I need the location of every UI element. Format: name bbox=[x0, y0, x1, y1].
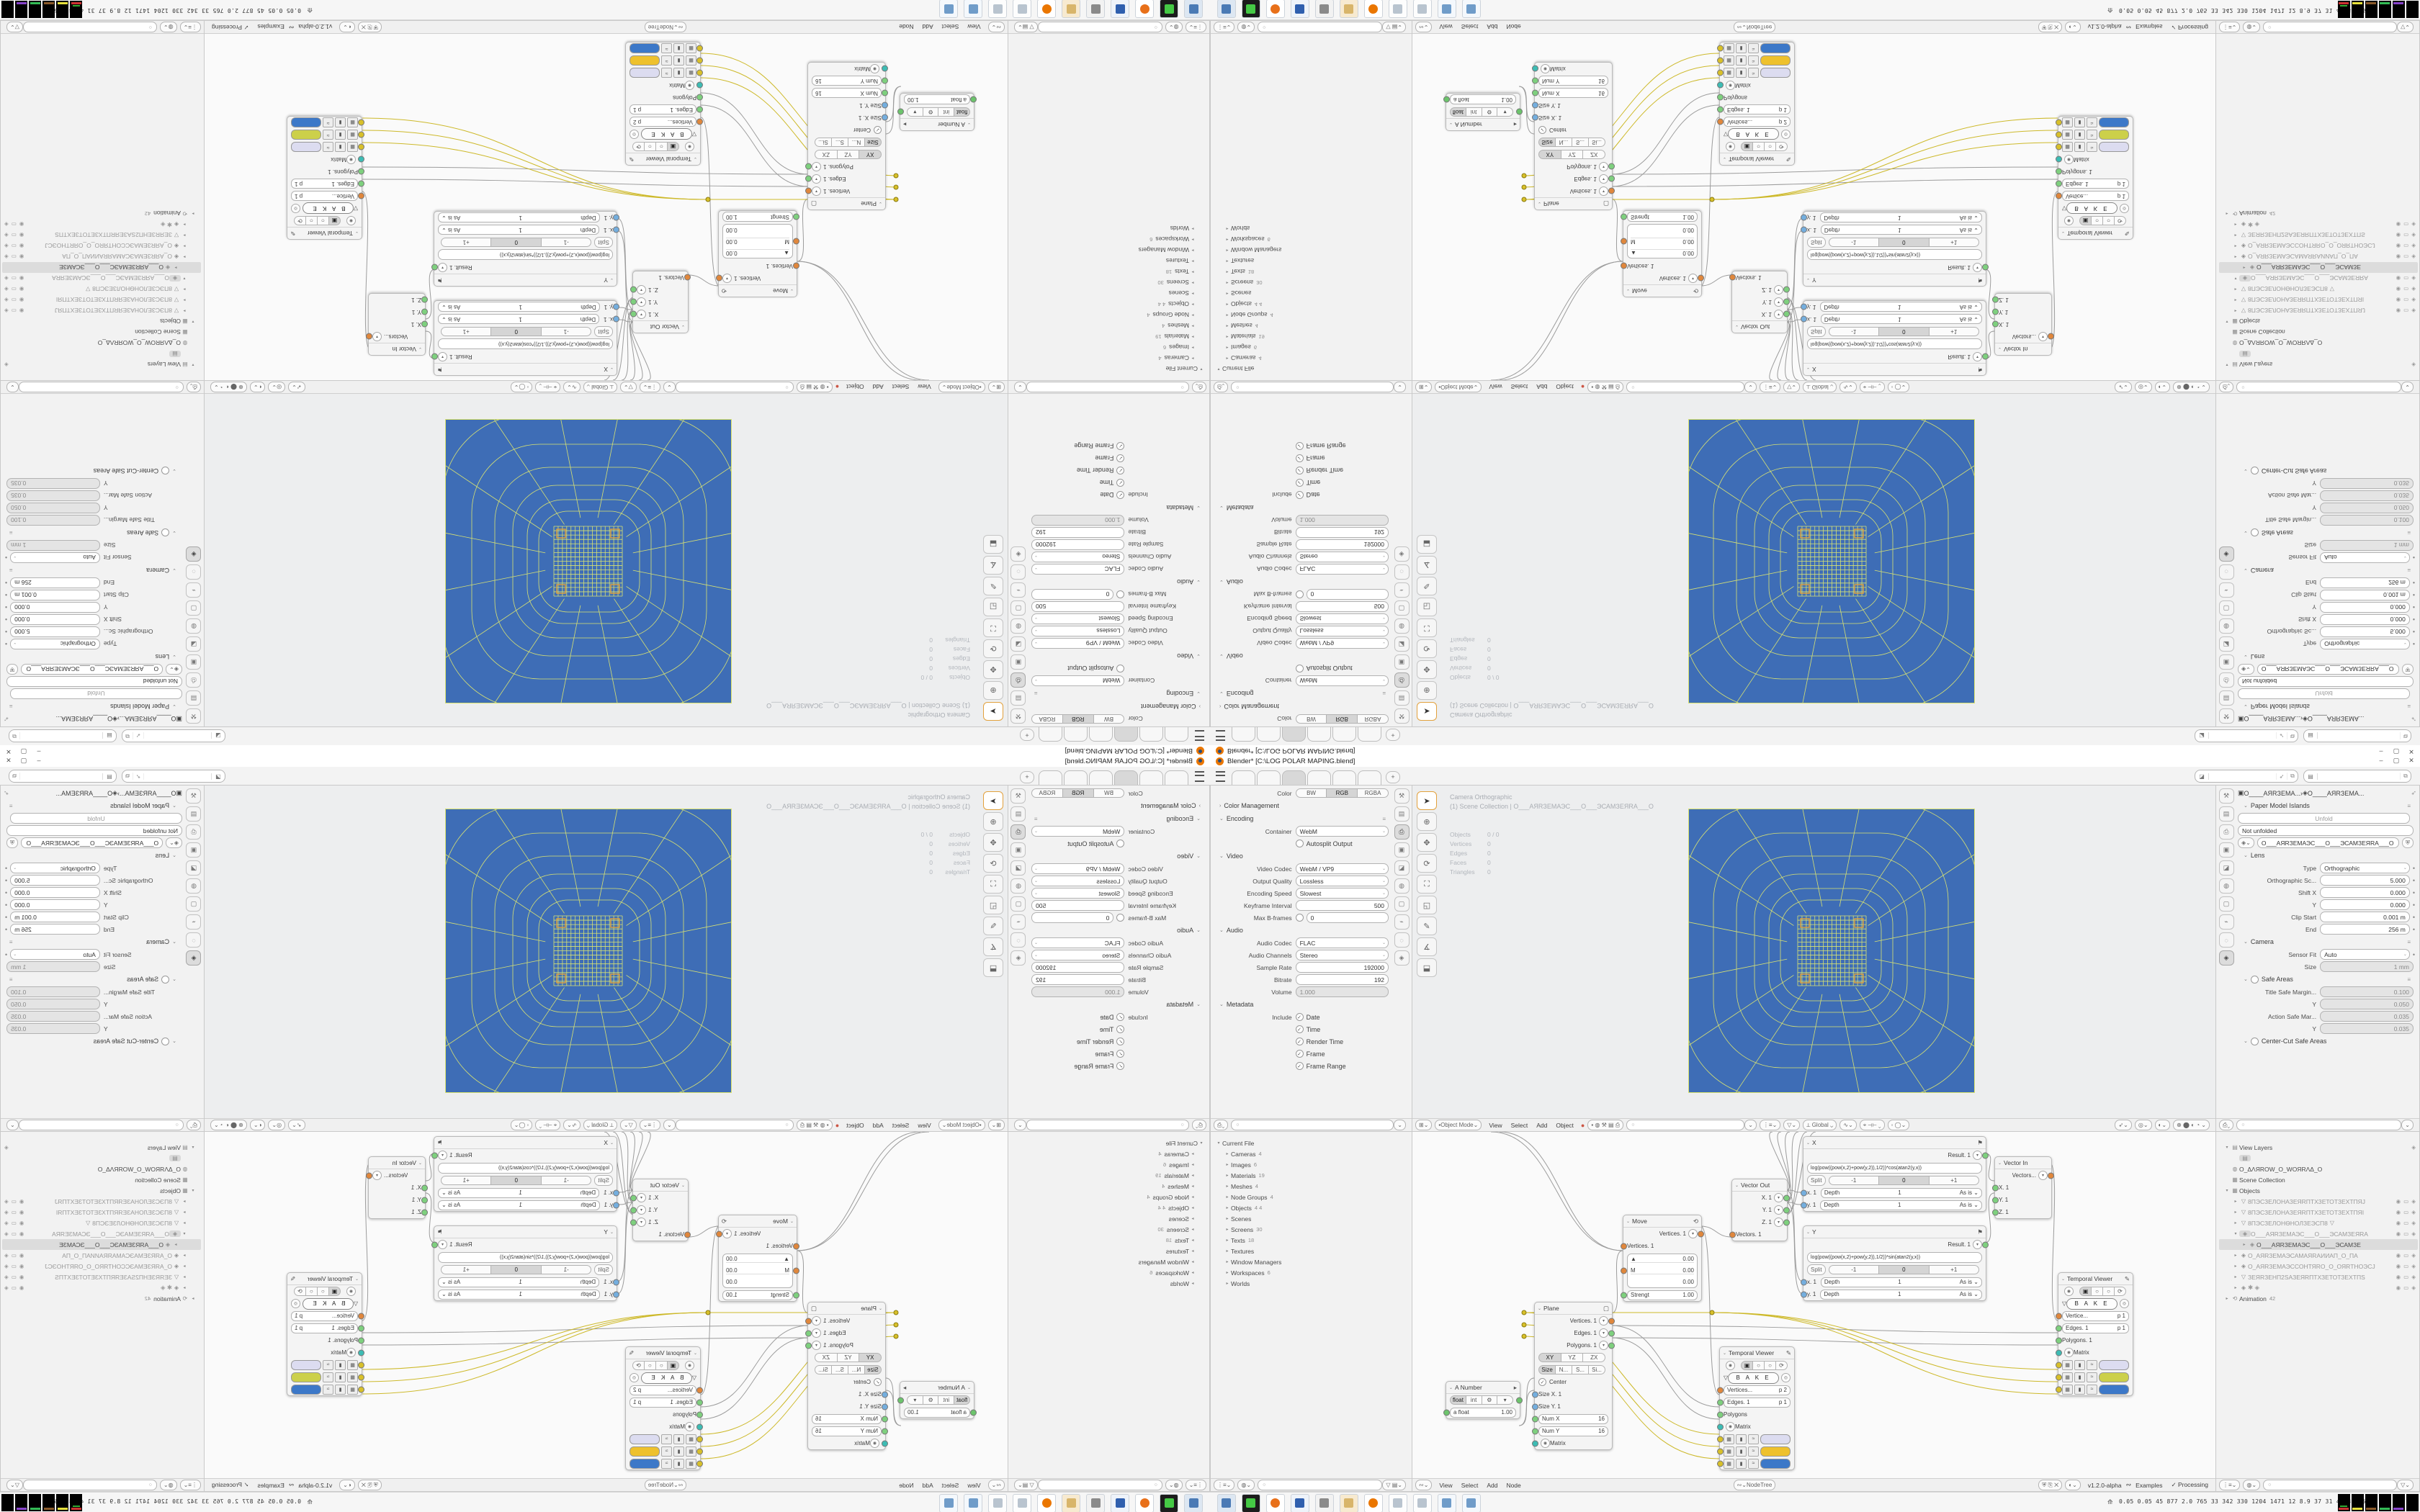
prop-field[interactable]: Stereo⌄ bbox=[1031, 950, 1124, 960]
swatch-option-icon[interactable]: ▮ bbox=[1736, 1459, 1747, 1469]
socket-l[interactable] bbox=[970, 96, 977, 103]
overlay-toggle-group[interactable]: ▪ ◍ ⚒ ▤ ⎙ bbox=[797, 1120, 833, 1130]
prop-field[interactable]: 1.000 bbox=[1031, 515, 1124, 526]
overlays-toggle[interactable]: ◎⌄ bbox=[2135, 1120, 2152, 1130]
taskbar-app-firefox[interactable] bbox=[1135, 0, 1154, 18]
monitor-icon[interactable]: ▭ bbox=[2403, 307, 2408, 314]
socket-l[interactable] bbox=[1532, 1391, 1538, 1398]
prop-field[interactable]: 1.000 bbox=[1296, 986, 1389, 997]
value-pill[interactable]: a float1.00 bbox=[1450, 95, 1516, 105]
outliner-row[interactable]: ▸◈ O_АЯRЗЕМАЭСАМАЯRАИИАП_О_ПА◉▭◈ bbox=[2, 1250, 201, 1261]
socket-r[interactable] bbox=[1608, 188, 1615, 194]
value-dropdown[interactable]: ▾ bbox=[1774, 1218, 1783, 1227]
value-pill[interactable]: Num X16 bbox=[812, 1414, 882, 1424]
panel-header-encoding[interactable]: ⌄Encoding≡ bbox=[1028, 687, 1206, 700]
menu-add[interactable]: Add bbox=[873, 1122, 884, 1129]
outliner-row[interactable]: ▸◈ ✱ ◈◉▭◈ bbox=[2219, 1282, 2418, 1293]
node-header[interactable]: ⌄Temporal Viewer✎ bbox=[287, 227, 362, 239]
viewlayer-selector[interactable]: ▤ ⧉ bbox=[2303, 770, 2411, 783]
checkbox[interactable] bbox=[1116, 840, 1124, 847]
prop-field[interactable]: WebM⌄ bbox=[1031, 826, 1124, 837]
segment-[interactable]: ▾ bbox=[907, 1395, 923, 1405]
node-tree-selector[interactable]: ∾⌄ NodeTree bbox=[1734, 22, 1776, 32]
socket-r[interactable] bbox=[1783, 299, 1790, 305]
socket-r[interactable] bbox=[1608, 176, 1615, 182]
node-a-number[interactable]: ⌄A Number▸floatint⚙▾a float1.00 bbox=[1446, 93, 1520, 131]
tool-button-6[interactable]: ✎ bbox=[1417, 917, 1437, 935]
node-checkbox[interactable]: ✓ bbox=[1538, 126, 1546, 134]
split-button[interactable]: Split bbox=[594, 1175, 613, 1186]
id-name-field[interactable]: O___АЯRЗЕМАЭС___О___ЭСАМЗЕЯRА___О bbox=[2257, 664, 2399, 675]
tool-button-7[interactable]: ∡ bbox=[983, 937, 1003, 956]
workspace-tab-6[interactable] bbox=[1039, 770, 1062, 785]
eye-icon[interactable]: ◉ bbox=[2396, 286, 2401, 292]
node-header[interactable]: ⌄Vector In bbox=[369, 343, 425, 355]
value-dropdown[interactable]: ▾ bbox=[637, 1193, 646, 1202]
swatch-option-icon[interactable]: ▦ bbox=[2062, 130, 2073, 140]
swatch-option-icon[interactable]: ▮ bbox=[1736, 68, 1747, 78]
node-header[interactable]: ⌄Vector In bbox=[1995, 343, 2051, 355]
eye-icon[interactable]: ◉ bbox=[19, 1230, 24, 1237]
menu-view[interactable]: View bbox=[967, 1482, 980, 1489]
minimize-button[interactable]: – bbox=[35, 747, 43, 755]
eye-icon[interactable]: ◉ bbox=[346, 216, 356, 225]
tool-button-0[interactable]: ➤ bbox=[983, 702, 1003, 721]
depth-pill[interactable]: Depth1As is ⌄ bbox=[1821, 315, 1982, 325]
outliner-row[interactable]: ▸▽ 8ПЭСЗЕЛОНѲНОЛЗЕЭСП8 ▽◉▭◈ bbox=[2, 1218, 201, 1228]
properties-tab-4[interactable]: ◪ bbox=[1394, 860, 1410, 876]
node-editor[interactable]: ⌄A Number▸floatint⚙▾a float1.00⌄Plane▢Ve… bbox=[1412, 20, 2216, 381]
panel-menu-icon[interactable]: ≡ bbox=[2407, 976, 2411, 983]
properties-tab-3[interactable]: ▣ bbox=[2219, 654, 2234, 670]
swatch-option-icon[interactable]: ▦ bbox=[686, 1446, 696, 1457]
socket-l[interactable] bbox=[1717, 58, 1724, 64]
panel-checkbox[interactable] bbox=[2251, 976, 2259, 984]
outliner-row[interactable]: ▸◈ O_АЯRЗЕМАЭССОНТЯRО_О_ОЯRТНОЭСЈ◉▭◈ bbox=[2, 240, 201, 251]
socket-l[interactable] bbox=[1621, 238, 1627, 245]
vector-widget[interactable]: ▲0.00M0.000.00 bbox=[722, 225, 793, 259]
display-mode-dropdown[interactable]: ⋮≡⌄ bbox=[1214, 22, 1234, 32]
node-a-number[interactable]: ⌄A Number▸floatint⚙▾a float1.00 bbox=[900, 1381, 974, 1419]
outliner-file-item[interactable]: ▸Textures bbox=[1215, 1246, 1409, 1256]
taskbar-app-folder[interactable] bbox=[1062, 1494, 1080, 1512]
socket-r[interactable] bbox=[716, 275, 722, 282]
segment-[interactable]: ⚙ bbox=[1482, 1395, 1498, 1405]
split-1[interactable]: +1 bbox=[441, 238, 491, 247]
socket-r[interactable] bbox=[630, 287, 637, 293]
monitor-icon[interactable]: ▭ bbox=[12, 1263, 17, 1269]
node-temporal-viewer[interactable]: ⌄Temporal Viewer✎◉▣○○⟳▽B A K E◎Vertice..… bbox=[287, 116, 362, 240]
socket-l[interactable] bbox=[1801, 1189, 1807, 1196]
depth-pill[interactable]: Depth1As is ⌄ bbox=[438, 225, 599, 235]
new-id-icon[interactable]: ⧉ bbox=[2400, 773, 2411, 780]
shape-1[interactable]: ○ bbox=[2091, 1287, 2103, 1296]
swatch-option-icon[interactable]: ▮ bbox=[673, 68, 684, 78]
outliner-file-item[interactable]: ▸Workspaces6 bbox=[1215, 1267, 1409, 1278]
menu-select[interactable]: Select bbox=[942, 1482, 959, 1489]
snap-target-group[interactable]: ⌖ ⊣⊢ ⌄ bbox=[535, 1120, 560, 1130]
workspace-tab-3[interactable] bbox=[1282, 727, 1306, 742]
editor-type-button[interactable]: ⎙⌄ bbox=[1214, 382, 1228, 392]
socket-l[interactable] bbox=[1443, 96, 1450, 103]
shape-2[interactable]: ○ bbox=[305, 216, 318, 225]
socket-r[interactable] bbox=[1608, 1342, 1615, 1349]
value-pill[interactable]: Num X16 bbox=[1538, 89, 1608, 99]
outliner-file-item[interactable]: ▸Window Managers bbox=[1011, 1256, 1205, 1267]
properties-tab-6[interactable]: ▢ bbox=[187, 896, 202, 912]
gizmo-toggle[interactable]: ➶⌄ bbox=[2115, 1120, 2131, 1130]
anim-dot-icon[interactable]: • bbox=[5, 865, 7, 872]
depth-pill[interactable]: Depth1As is ⌄ bbox=[1821, 225, 1982, 235]
segment-[interactable]: ⚙ bbox=[923, 1395, 939, 1405]
value-dropdown[interactable]: ▾ bbox=[637, 285, 646, 294]
menu-select[interactable]: Select bbox=[1461, 24, 1479, 31]
value-pill[interactable]: Num Y16 bbox=[1538, 76, 1608, 86]
socket-l[interactable] bbox=[358, 120, 364, 126]
prop-field[interactable]: 0.050 bbox=[6, 999, 100, 1009]
prop-field[interactable]: WebM / VP9⌄ bbox=[1296, 863, 1389, 874]
node-vector-out[interactable]: ⌄Vector OutX. 1▾Y. 1▾Z. 1▾Vectors. 1 bbox=[1731, 1179, 1788, 1241]
properties-tab-1[interactable]: ▤ bbox=[1394, 806, 1410, 822]
value-dropdown[interactable]: ▾ bbox=[1774, 1193, 1783, 1202]
color-swatch[interactable] bbox=[1760, 56, 1791, 66]
outliner-file-item[interactable]: ▸Cameras4 bbox=[1011, 1148, 1205, 1159]
value-pill[interactable]: Vertices...p 2 bbox=[629, 117, 696, 127]
snap-target-group[interactable]: ⌖ ⊣⊢ ⌄ bbox=[535, 382, 560, 392]
taskbar-app-folder[interactable] bbox=[1062, 0, 1080, 18]
panel-menu-icon[interactable]: ≡ bbox=[1382, 816, 1386, 822]
bake-button[interactable]: B A K E bbox=[2066, 1298, 2117, 1310]
swatch-option-icon[interactable]: ▦ bbox=[686, 44, 696, 54]
prop-field[interactable]: 0.050 bbox=[2320, 503, 2414, 513]
outliner-row[interactable]: ▾▤ View Layers◈ bbox=[2219, 1142, 2418, 1153]
shape-3[interactable]: ⟳ bbox=[2114, 216, 2126, 225]
prop-field[interactable]: WebM / VP9⌄ bbox=[1031, 638, 1124, 649]
color-option-rgb[interactable]: RGB bbox=[1326, 788, 1358, 798]
render-icon[interactable]: ◈ bbox=[2411, 1230, 2416, 1237]
close-button[interactable]: ✕ bbox=[2407, 747, 2416, 755]
record-icon[interactable]: ◎ bbox=[1781, 130, 1791, 139]
scene-selector[interactable]: ◪ ➶ ⧉ bbox=[2195, 729, 2298, 742]
outliner-file-item[interactable]: ▸Textures bbox=[1011, 256, 1205, 266]
socket-r[interactable] bbox=[805, 163, 812, 170]
prop-field[interactable]: FLAC⌄ bbox=[1031, 937, 1124, 948]
segment-XY[interactable]: XY bbox=[859, 1353, 882, 1362]
socket-l[interactable] bbox=[882, 78, 888, 84]
taskbar-app-firefox[interactable] bbox=[1266, 0, 1285, 18]
render-icon[interactable]: ◈ bbox=[4, 232, 9, 238]
eye-icon[interactable]: ◉ bbox=[2396, 275, 2401, 282]
monitor-icon[interactable]: ▭ bbox=[12, 243, 17, 249]
filter-id-dropdown[interactable]: ◍⌄ bbox=[1237, 22, 1255, 32]
unfold-button[interactable]: Unfold bbox=[2238, 688, 2410, 699]
prop-field[interactable]: 192 bbox=[1031, 527, 1124, 538]
taskbar-app-notepad[interactable] bbox=[1413, 0, 1432, 18]
outliner-file-item[interactable]: ▸Screens30 bbox=[1215, 277, 1409, 288]
outliner-row[interactable]: ▸▽ ЗЕЯRЗЕНП2SАЗЕЯRПТХЗЕТОТЗЕХТПS◉▭◈ bbox=[2219, 1272, 2418, 1282]
properties-tab-3[interactable]: ▣ bbox=[1011, 654, 1026, 670]
viewport-3d[interactable]: ➤⊕✥⟳⛶◱✎∡⬓Camera Orthographic(1) Scene Co… bbox=[204, 785, 1008, 1132]
xray-toggle[interactable]: ◐⌄ bbox=[2155, 382, 2171, 392]
outliner-row[interactable]: ▦ Scene Collection bbox=[2, 1174, 201, 1185]
monitor-icon[interactable]: ▭ bbox=[12, 232, 17, 238]
window-titlebar[interactable]: Blender* [C:\LOG POLAR MAPING.blend] – ▢… bbox=[1210, 744, 2420, 756]
properties-tab-4[interactable]: ◪ bbox=[187, 636, 202, 652]
bake-button[interactable]: B A K E bbox=[1728, 129, 1779, 140]
color-swatch[interactable] bbox=[2099, 1360, 2129, 1370]
examples-menu[interactable]: Examples bbox=[2136, 24, 2162, 31]
anim-dot-icon[interactable]: • bbox=[5, 604, 7, 611]
properties-tab-9[interactable]: ◈ bbox=[1011, 950, 1026, 966]
depth-pill[interactable]: Depth1As is ⌄ bbox=[438, 315, 599, 325]
node-header[interactable]: ⌄Vector Out bbox=[633, 1179, 688, 1192]
panel-header-lens[interactable]: ⌄Lens bbox=[4, 849, 182, 862]
value-dropdown[interactable]: ▾ bbox=[1774, 285, 1783, 294]
outliner-row[interactable]: ▾▤ View Layers◈ bbox=[2, 359, 201, 370]
panel-menu-icon[interactable]: ≡ bbox=[9, 567, 13, 574]
eye-icon[interactable]: ◉ bbox=[19, 1263, 24, 1269]
camera-id-icon[interactable]: ◈⌄ bbox=[166, 837, 182, 848]
properties-tab-9[interactable]: ◈ bbox=[187, 546, 202, 562]
panel-header-metadata[interactable]: ⌄Metadata bbox=[1214, 501, 1391, 514]
eye-icon[interactable]: ◉ bbox=[19, 1252, 24, 1259]
workspace-tab-2[interactable] bbox=[1139, 727, 1163, 742]
value-dropdown[interactable]: ▾ bbox=[812, 162, 821, 171]
workspace-tab-5[interactable] bbox=[1064, 770, 1088, 785]
monitor-icon[interactable]: ▭ bbox=[12, 1284, 17, 1291]
node-header[interactable]: ⌄Y⚑ bbox=[434, 1226, 617, 1238]
viewport-search-input[interactable] bbox=[676, 1120, 794, 1130]
socket-l[interactable] bbox=[2056, 1386, 2062, 1392]
outliner-row[interactable]: ▾◈ O___АЯRЗЕМАЭС___О___ЭСАМЗЕЯRА◉▭◈ bbox=[2219, 1228, 2418, 1239]
shape-1[interactable]: ○ bbox=[1752, 142, 1765, 151]
panel-header-camera[interactable]: ⌄Camera≡ bbox=[4, 935, 182, 948]
node-vector-out[interactable]: ⌄Vector OutX. 1▾Y. 1▾Z. 1▾Vectors. 1 bbox=[632, 1179, 689, 1241]
outliner-file-item[interactable]: ▸Meshes4 bbox=[1011, 320, 1205, 331]
taskbar-app-floppy64[interactable] bbox=[1291, 1494, 1309, 1512]
socket-l[interactable] bbox=[613, 215, 619, 221]
shape-3[interactable]: ⟳ bbox=[294, 216, 306, 225]
prop-field[interactable]: 1.000 bbox=[1296, 515, 1389, 526]
display-mode-dropdown[interactable]: ⋮≡⌄ bbox=[180, 22, 201, 32]
color-option-rgb[interactable]: RGB bbox=[1062, 714, 1094, 724]
properties-tab-3[interactable]: ▣ bbox=[1011, 842, 1026, 858]
properties-tab-7[interactable]: ⌁ bbox=[1011, 914, 1026, 930]
node-header[interactable]: ⌄X⚑ bbox=[1803, 1137, 1986, 1149]
outliner-row[interactable]: ▤ bbox=[2219, 1153, 2418, 1164]
split-1[interactable]: -1 bbox=[1829, 1176, 1879, 1185]
color-swatch[interactable] bbox=[2099, 118, 2129, 128]
socket-l[interactable] bbox=[1717, 1411, 1724, 1418]
properties-tab-8[interactable]: ◌ bbox=[187, 932, 202, 948]
filter-id-dropdown[interactable]: ◍⌄ bbox=[2243, 22, 2260, 32]
panel-header-video[interactable]: ⌄Video bbox=[1214, 649, 1391, 662]
filter-id-dropdown[interactable]: ◍⌄ bbox=[1237, 1480, 1255, 1490]
swatch-option-icon[interactable]: ▮ bbox=[335, 1360, 346, 1370]
swatch-option-icon[interactable]: ≈ bbox=[1748, 56, 1759, 66]
outliner-file-item[interactable]: ▸Meshes4 bbox=[1215, 1181, 1409, 1192]
prop-field[interactable]: 0.000 bbox=[2320, 614, 2410, 625]
color-swatch[interactable] bbox=[1760, 68, 1791, 78]
workspace-tab-3[interactable] bbox=[1114, 727, 1138, 742]
anim-dot-icon[interactable]: • bbox=[5, 889, 7, 896]
options-chevron-button[interactable]: ⌄ bbox=[6, 1120, 19, 1130]
monitor-icon[interactable]: ▭ bbox=[2403, 1252, 2408, 1259]
options-chevron-button[interactable]: ⌄ bbox=[2401, 1120, 2414, 1130]
render-icon[interactable]: ◈ bbox=[4, 253, 9, 260]
panel-header-audio[interactable]: ⌄Audio bbox=[1214, 924, 1391, 937]
split-button[interactable]: Split bbox=[1807, 1175, 1826, 1186]
node-temporal-viewer[interactable]: ⌄Temporal Viewer✎◉▣○○⟳▽B A K E◎Vertices.… bbox=[1719, 42, 1795, 166]
value-dropdown[interactable]: ▾ bbox=[1688, 1229, 1698, 1238]
prop-field[interactable]: 0.000 bbox=[2320, 602, 2410, 613]
segment-N[interactable]: N... bbox=[848, 138, 865, 147]
node-plane[interactable]: ⌄Plane▢Vertices. 1▾Edges. 1▾Polygons. 1▾… bbox=[807, 62, 886, 210]
socket-r[interactable] bbox=[1783, 1219, 1790, 1225]
socket-l[interactable] bbox=[793, 238, 799, 245]
eye-icon[interactable]: ◉ bbox=[19, 243, 24, 249]
shape-0[interactable]: ▣ bbox=[1741, 142, 1753, 151]
panel-header-camera[interactable]: ⌄Camera≡ bbox=[4, 564, 182, 577]
split-button[interactable]: Split bbox=[594, 237, 613, 248]
prop-field[interactable]: 0.001 m bbox=[10, 912, 100, 922]
segment-float[interactable]: float bbox=[954, 1395, 970, 1405]
outliner-file-item[interactable]: ▸Objects4 4 bbox=[1215, 299, 1409, 310]
swatch-option-icon[interactable]: ▮ bbox=[673, 1446, 684, 1457]
properties-tab-1[interactable]: ▤ bbox=[2219, 690, 2234, 706]
eye-icon[interactable]: ◉ bbox=[1726, 1361, 1735, 1370]
split-0[interactable]: 0 bbox=[1878, 238, 1929, 247]
shape-0[interactable]: ▣ bbox=[328, 1287, 341, 1296]
prop-field[interactable]: 1 mm bbox=[2320, 540, 2414, 551]
value-pill[interactable]: a float1.00 bbox=[904, 95, 970, 105]
monitor-icon[interactable]: ▭ bbox=[12, 1230, 17, 1237]
prop-field[interactable]: 0.000 bbox=[10, 602, 100, 613]
tool-button-3[interactable]: ⟳ bbox=[983, 639, 1003, 658]
socket-l[interactable] bbox=[613, 1202, 619, 1208]
segment-ZX[interactable]: ZX bbox=[815, 1353, 838, 1362]
shape-3[interactable]: ⟳ bbox=[294, 1287, 306, 1296]
workspace-tab-4[interactable] bbox=[1089, 727, 1113, 742]
depth-pill[interactable]: Depth1As is ⌄ bbox=[1820, 1290, 1982, 1300]
menu-node[interactable]: Node bbox=[1506, 1482, 1520, 1489]
socket-l[interactable] bbox=[696, 1436, 703, 1442]
split-1[interactable]: -1 bbox=[1829, 1265, 1879, 1274]
outliner-file-root[interactable]: ▾Current File bbox=[1011, 364, 1205, 374]
segment-N[interactable]: N... bbox=[848, 1365, 865, 1374]
taskbar-app-floppy64[interactable] bbox=[1291, 0, 1309, 18]
monitor-icon[interactable]: ▭ bbox=[12, 297, 17, 303]
vector-widget[interactable]: ▲0.00M0.000.00 bbox=[1627, 225, 1698, 259]
panel-header-encoding[interactable]: ⌄Encoding≡ bbox=[1028, 812, 1206, 825]
snap-toggle[interactable]: ∿⌄ bbox=[1839, 1120, 1856, 1130]
properties-tab-5[interactable]: ◍ bbox=[1011, 618, 1026, 634]
unfold-button[interactable]: Unfold bbox=[10, 813, 182, 824]
checkbox[interactable]: ✓ bbox=[1296, 491, 1304, 499]
menu-select[interactable]: Select bbox=[892, 384, 910, 391]
new-id-icon[interactable]: ⧉ bbox=[2400, 732, 2411, 739]
render-icon[interactable]: ◈ bbox=[4, 1209, 9, 1215]
window-titlebar[interactable]: Blender* [C:\LOG POLAR MAPING.blend] – ▢… bbox=[0, 744, 1210, 756]
socket-l[interactable] bbox=[358, 1386, 364, 1392]
swatch-option-icon[interactable]: ▦ bbox=[1724, 1459, 1734, 1469]
panel-header-color-management[interactable]: ›Color Management bbox=[1214, 799, 1391, 812]
add-workspace-button[interactable]: + bbox=[1386, 729, 1400, 741]
panel-menu-icon[interactable]: ≡ bbox=[1034, 690, 1038, 697]
orientation-dropdown[interactable]: ⟂ Global ⌄ bbox=[583, 1120, 617, 1130]
swatch-option-icon[interactable]: ≈ bbox=[323, 1360, 333, 1370]
socket-r[interactable] bbox=[1783, 311, 1790, 318]
segment-float[interactable]: float bbox=[954, 107, 970, 117]
color-swatch[interactable] bbox=[1760, 1459, 1791, 1469]
shape-1[interactable]: ○ bbox=[2091, 216, 2103, 225]
node-header[interactable]: ⌄Temporal Viewer✎ bbox=[626, 153, 700, 165]
workspace-tab-1[interactable] bbox=[1232, 727, 1255, 742]
anim-dot-icon[interactable]: • bbox=[2413, 604, 2415, 611]
properties-tab-7[interactable]: ⌁ bbox=[1394, 582, 1410, 598]
menu-node[interactable]: Node bbox=[899, 1482, 913, 1489]
socket-l[interactable] bbox=[696, 45, 703, 52]
outliner-row[interactable]: ▾▦ Objects bbox=[2219, 316, 2418, 327]
socket-l[interactable] bbox=[696, 1387, 703, 1393]
outliner-file-item[interactable]: ▸Textures bbox=[1011, 1246, 1205, 1256]
socket-l[interactable] bbox=[2056, 193, 2062, 199]
socket-l[interactable] bbox=[970, 1409, 977, 1416]
record-icon[interactable]: ◎ bbox=[2120, 1299, 2129, 1308]
gizmo-toggle[interactable]: ➶⌄ bbox=[288, 1120, 305, 1130]
shape-3[interactable]: ⟳ bbox=[1775, 142, 1788, 151]
socket-l[interactable] bbox=[2056, 168, 2062, 175]
socket-r[interactable] bbox=[1982, 264, 1989, 271]
socket-l[interactable] bbox=[882, 1403, 888, 1410]
add-workspace-button[interactable]: + bbox=[1020, 729, 1034, 741]
socket-r[interactable] bbox=[805, 1330, 812, 1336]
properties-tab-7[interactable]: ⌁ bbox=[2219, 914, 2234, 930]
prop-field[interactable]: Lossless⌄ bbox=[1296, 626, 1389, 636]
tool-button-1[interactable]: ⊕ bbox=[1417, 812, 1437, 831]
id-name-field[interactable]: O___АЯRЗЕМАЭС___О___ЭСАМЗЕЯRА___О bbox=[2257, 837, 2399, 848]
taskbar-app-firefox[interactable] bbox=[1266, 1494, 1285, 1512]
swatch-option-icon[interactable]: ≈ bbox=[661, 1459, 672, 1469]
outliner-file-item[interactable]: ▸Texts18 bbox=[1011, 1235, 1205, 1246]
properties-tab-2[interactable]: ⎙ bbox=[1011, 824, 1026, 840]
tool-button-5[interactable]: ◱ bbox=[983, 896, 1003, 914]
node-header[interactable]: ⌄A Number▸ bbox=[900, 1382, 974, 1394]
taskbar-app-calculator[interactable] bbox=[939, 0, 958, 18]
panel-menu-icon[interactable]: ≡ bbox=[1034, 816, 1038, 822]
panel-header-audio[interactable]: ⌄Audio bbox=[1028, 575, 1206, 588]
properties-tab-5[interactable]: ◍ bbox=[2219, 878, 2234, 894]
taskbar-app-speaker[interactable] bbox=[1315, 0, 1334, 18]
split-0[interactable]: 0 bbox=[490, 238, 541, 247]
swatch-option-icon[interactable]: ▦ bbox=[1724, 68, 1734, 78]
record-icon[interactable]: ◎ bbox=[2120, 204, 2129, 213]
color-swatch[interactable] bbox=[2099, 130, 2129, 140]
panel-menu-icon[interactable]: ≡ bbox=[9, 530, 13, 536]
value-pill[interactable]: Vertice...p 1 bbox=[2062, 192, 2129, 202]
properties-search-input[interactable] bbox=[19, 382, 184, 392]
depth-pill[interactable]: Depth1As is ⌄ bbox=[438, 1200, 600, 1210]
properties-tab-0[interactable]: ⚒ bbox=[2219, 788, 2234, 804]
properties-tab-6[interactable]: ▢ bbox=[187, 600, 202, 616]
vector-widget[interactable]: ▲0.00M0.000.00 bbox=[722, 1254, 793, 1288]
color-swatch[interactable] bbox=[2099, 1385, 2129, 1395]
segment-Si[interactable]: Si... bbox=[815, 1365, 832, 1374]
socket-r[interactable] bbox=[630, 1194, 637, 1201]
panel-header-color-management[interactable]: ›Color Management bbox=[1028, 799, 1206, 812]
prop-field[interactable]: 0.035 bbox=[6, 478, 100, 489]
shield-icon[interactable]: ⛨ bbox=[2402, 664, 2414, 675]
